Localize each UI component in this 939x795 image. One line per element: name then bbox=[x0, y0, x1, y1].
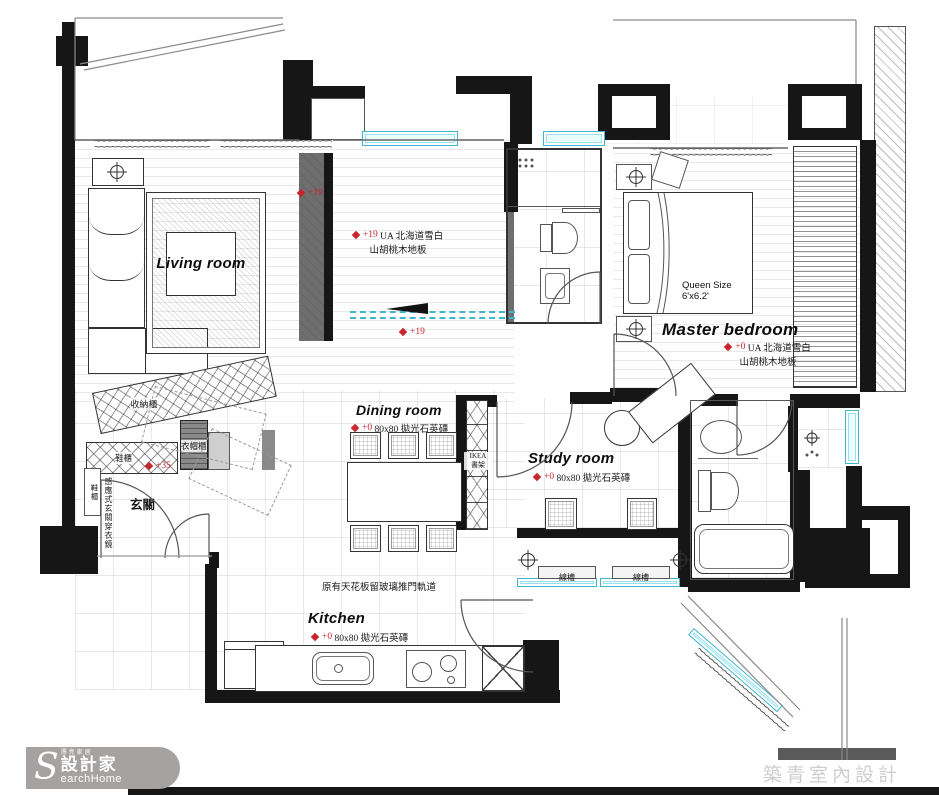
dining-room-label: Dining room bbox=[356, 402, 442, 418]
floor-cushion bbox=[627, 498, 657, 530]
kitchen-label: Kitchen bbox=[308, 610, 365, 627]
wall bbox=[40, 526, 98, 574]
window bbox=[517, 578, 597, 587]
window bbox=[845, 410, 859, 464]
ceiling-note: 原有天花板留玻璃推門軌道 bbox=[322, 579, 436, 593]
level-annotation: +35 bbox=[146, 461, 171, 471]
wall-notch bbox=[612, 96, 656, 128]
level-marker-icon bbox=[145, 462, 153, 470]
shoe-cabinet-2: 鞋櫃 bbox=[84, 468, 101, 516]
wall bbox=[860, 140, 876, 392]
toilet-tank bbox=[698, 470, 711, 512]
dining-chair bbox=[388, 525, 419, 552]
wall bbox=[456, 76, 532, 94]
tile-annotation: +0 80x80 拋光石英磚 bbox=[312, 630, 408, 644]
tv-console bbox=[92, 158, 144, 186]
window bbox=[362, 131, 458, 146]
logo-s-glyph: S bbox=[34, 752, 59, 784]
entry-label: 玄關 bbox=[130, 494, 155, 513]
bottom-border-bar bbox=[128, 787, 939, 795]
wall bbox=[688, 578, 800, 592]
wall bbox=[56, 36, 88, 66]
burner bbox=[412, 662, 432, 682]
window-diagonal bbox=[688, 628, 783, 712]
entry-mirror-note: 感應式玄關穿衣鏡 bbox=[103, 477, 114, 577]
dining-chair bbox=[388, 432, 419, 459]
wood-floor-annotation: +0 UA 北海道雪白 山胡桃木地板 bbox=[688, 340, 848, 368]
wave-hatch-diagonal: ~~~~~~~~~~~~~~~~~~~~~~~~~~~~~~~~~~~~~~~~… bbox=[690, 646, 790, 736]
level-marker-icon bbox=[351, 424, 359, 432]
floor-plan: ~~~~~~~~~~~~~~~~~~~~~~~~~~~~~~~~~~~~~~~~… bbox=[0, 0, 939, 795]
pillow bbox=[628, 200, 650, 250]
level-annotation: +19 bbox=[298, 188, 323, 198]
dining-chair bbox=[426, 525, 457, 552]
wave-hatch: ~~~~~~~~~~~~~~~~~~~~~~~~~~~~~~~~~~~~~~~~… bbox=[94, 138, 210, 153]
wall bbox=[311, 86, 365, 98]
cabinet-cross bbox=[482, 646, 524, 691]
level-marker-icon bbox=[533, 473, 541, 481]
tile-annotation: +0 80x80 拋光石英磚 bbox=[534, 470, 630, 484]
level-marker-icon bbox=[311, 633, 319, 641]
sink-drain bbox=[334, 664, 343, 673]
wall bbox=[205, 564, 217, 702]
wood-floor-annotation: +19 UA 北海道雪白 山胡桃木地板 bbox=[318, 228, 478, 256]
wall bbox=[510, 94, 532, 144]
logo-subtitle: earchHome bbox=[61, 774, 122, 786]
footer-gray-bar bbox=[778, 748, 896, 760]
stove-knob bbox=[447, 676, 455, 684]
wall bbox=[570, 392, 612, 404]
bath-sink bbox=[540, 268, 570, 304]
bath-partition bbox=[698, 458, 758, 459]
dining-table bbox=[347, 462, 462, 522]
oval-sink bbox=[700, 420, 742, 454]
wall bbox=[517, 528, 687, 538]
balcony-box bbox=[311, 98, 365, 140]
window bbox=[543, 131, 605, 146]
toilet-bowl bbox=[711, 472, 739, 510]
dining-chair bbox=[350, 525, 381, 552]
dining-chair bbox=[426, 432, 457, 459]
wall bbox=[790, 394, 860, 408]
wall bbox=[283, 60, 313, 140]
toilet-tank bbox=[540, 224, 552, 252]
sofa bbox=[88, 188, 145, 328]
exterior-hatch-strip bbox=[874, 26, 906, 392]
cable-tray: 線槽 bbox=[612, 566, 670, 579]
level-marker-icon bbox=[352, 231, 360, 239]
sliding-glass-door bbox=[350, 311, 515, 319]
level-marker-icon bbox=[724, 343, 732, 351]
study-room-label: Study room bbox=[528, 450, 614, 467]
bathtub bbox=[694, 524, 794, 574]
wall-notch bbox=[802, 96, 846, 128]
wall bbox=[523, 640, 559, 703]
kitchen-sink bbox=[312, 652, 374, 685]
shower-shelf bbox=[562, 208, 600, 213]
level-marker-icon bbox=[399, 328, 407, 336]
wave-hatch: ~~~~~~~~~~~~~~~~~~~~~~~~~~~~~~~~~~~~~~~~… bbox=[220, 138, 332, 153]
wall bbox=[62, 22, 75, 538]
toilet-bowl bbox=[552, 222, 578, 254]
level-marker-icon bbox=[297, 189, 305, 197]
logo-name: 設計家 bbox=[61, 756, 122, 774]
utility-balcony bbox=[790, 408, 846, 468]
bed-size-label: Queen Size6'x6.2' bbox=[682, 280, 732, 302]
cable-tray: 線槽 bbox=[538, 566, 596, 579]
wall bbox=[805, 574, 910, 588]
floor-cushion bbox=[545, 498, 577, 530]
bookshelf-label: IKEA書架 bbox=[464, 452, 492, 470]
dining-chair bbox=[350, 432, 381, 459]
burner bbox=[440, 655, 457, 672]
nightstand bbox=[616, 316, 652, 342]
living-room-label: Living room bbox=[146, 255, 256, 272]
pillow bbox=[628, 254, 650, 304]
level-annotation: +19 bbox=[400, 327, 425, 337]
designer-credit: 築青室內設計 bbox=[763, 760, 901, 787]
shower-divider bbox=[508, 206, 600, 207]
door-post bbox=[209, 552, 219, 568]
master-bedroom-label: Master bedroom bbox=[662, 320, 798, 340]
nightstand bbox=[616, 164, 652, 190]
searchhome-logo: S 漂亮家居 設計家 earchHome bbox=[26, 747, 180, 789]
